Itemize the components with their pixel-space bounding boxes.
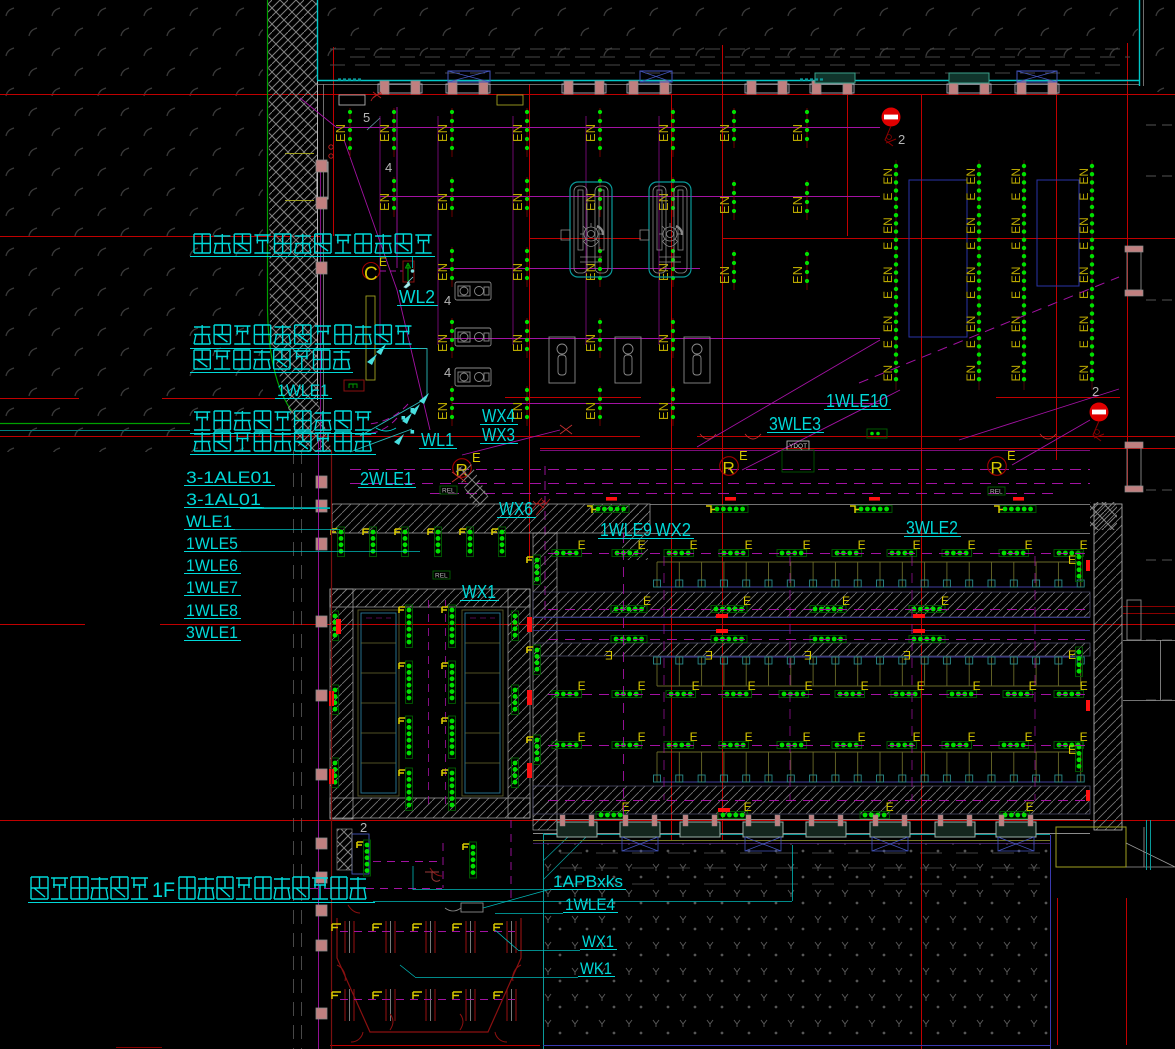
svg-text:WX6: WX6 [499,499,533,519]
svg-text:EN: EN [1009,316,1023,333]
svg-text:E: E [964,193,978,201]
svg-text:E: E [739,448,748,463]
svg-text:4: 4 [385,160,392,175]
svg-text:E: E [379,255,387,269]
svg-text:EN: EN [656,402,671,420]
svg-text:EN: EN [656,334,671,352]
svg-text:EN: EN [1077,316,1091,333]
svg-text:EN: EN [583,334,598,352]
svg-text:EN: EN [435,263,450,281]
svg-text:1WLE5: 1WLE5 [186,534,238,553]
svg-text:E: E [804,648,812,662]
svg-text:EN: EN [964,266,978,283]
svg-text:EN: EN [790,196,805,214]
svg-text:EN: EN [583,402,598,420]
svg-text:2: 2 [898,132,905,147]
svg-text:1F: 1F [152,879,175,902]
svg-text:C: C [364,264,378,285]
svg-text:E: E [1009,291,1023,299]
svg-text:E: E [1068,553,1076,567]
svg-text:EN: EN [964,316,978,333]
svg-text:E: E [705,648,713,662]
svg-text:E: E [881,291,895,299]
svg-text:E: E [964,291,978,299]
svg-text:EN: EN [881,266,895,283]
svg-text:EN: EN [435,402,450,420]
svg-text:E: E [1077,193,1091,201]
svg-text:EN: EN [964,217,978,234]
svg-text:E: E [1077,242,1091,250]
svg-text:4: 4 [444,293,451,308]
svg-text:E: E [881,193,895,201]
svg-text:REL: REL [990,489,1003,496]
svg-text:2: 2 [1092,384,1099,399]
svg-text:EN: EN [435,124,450,142]
svg-text:EN: EN [583,193,598,211]
svg-text:3-1AL01: 3-1AL01 [186,490,261,509]
svg-text:EN: EN [1009,217,1023,234]
svg-text:EN: EN [1009,168,1023,185]
svg-text:EN: EN [717,124,732,142]
svg-text:EN: EN [1077,168,1091,185]
svg-text:EN: EN [790,124,805,142]
svg-text:1APBxks: 1APBxks [553,872,623,891]
svg-text:YDQT: YDQT [789,443,807,450]
svg-text:E: E [1009,340,1023,348]
svg-text:EN: EN [510,334,525,352]
svg-text:EN: EN [435,334,450,352]
svg-text:WLE1: WLE1 [186,512,232,531]
svg-text:EN: EN [377,193,392,211]
svg-text:E: E [472,450,481,465]
svg-text:WX4: WX4 [482,406,515,426]
svg-text:WX1: WX1 [582,932,614,951]
svg-text:EN: EN [1077,217,1091,234]
svg-text:EN: EN [881,316,895,333]
svg-text:EN: EN [1077,365,1091,382]
svg-text:EN: EN [333,124,348,142]
svg-text:E: E [903,648,911,662]
svg-text:EN: EN [510,124,525,142]
svg-text:WX2: WX2 [655,520,691,540]
svg-text:1WLE9: 1WLE9 [600,520,652,540]
svg-text:WL1: WL1 [421,430,454,450]
svg-text:EN: EN [656,193,671,211]
svg-text:EN: EN [717,266,732,284]
svg-text:EN: EN [881,217,895,234]
svg-text:3WLE2: 3WLE2 [906,518,958,538]
svg-text:WL2: WL2 [399,287,435,307]
svg-text:EN: EN [717,196,732,214]
svg-text:EN: EN [377,124,392,142]
svg-text:EN: EN [510,193,525,211]
svg-text:2: 2 [360,820,367,835]
svg-text:EN: EN [1009,365,1023,382]
svg-text:1WLE4: 1WLE4 [565,895,615,914]
svg-text:1WLE8: 1WLE8 [186,601,238,620]
svg-text:E: E [1077,340,1091,348]
svg-text:E: E [1068,743,1076,757]
svg-text:2WLE1: 2WLE1 [360,469,413,489]
svg-text:EN: EN [1009,266,1023,283]
svg-text:E: E [1068,648,1076,662]
svg-text:E: E [1077,291,1091,299]
svg-text:R: R [723,459,735,478]
svg-text:EN: EN [964,168,978,185]
svg-text:E: E [964,242,978,250]
svg-text:WX1: WX1 [462,582,496,602]
svg-text:E: E [1009,242,1023,250]
svg-text:3WLE3: 3WLE3 [769,414,821,434]
svg-text:EN: EN [435,193,450,211]
svg-text:1WLE1: 1WLE1 [277,381,329,400]
svg-text:E: E [964,340,978,348]
svg-text:EN: EN [881,168,895,185]
svg-text:E: E [881,340,895,348]
svg-text:E: E [1007,448,1016,463]
svg-text:E: E [881,242,895,250]
svg-text:5: 5 [363,110,370,125]
svg-text:EN: EN [656,124,671,142]
svg-text:EN: EN [583,124,598,142]
svg-text:EN: EN [1077,266,1091,283]
svg-text:E: E [1009,193,1023,201]
svg-text:4: 4 [444,365,451,380]
svg-text:EN: EN [964,365,978,382]
svg-text:REL: REL [435,573,448,580]
svg-text:1WLE6: 1WLE6 [186,556,238,575]
svg-text:3-1ALE01: 3-1ALE01 [186,468,272,487]
svg-text:R: R [991,459,1003,478]
svg-text:EN: EN [790,266,805,284]
svg-text:3WLE1: 3WLE1 [186,623,238,642]
svg-text:1WLE7: 1WLE7 [186,578,238,597]
svg-text:REL: REL [442,488,455,495]
svg-text:EN: EN [510,263,525,281]
svg-text:WX3: WX3 [482,425,515,445]
svg-text:WK1: WK1 [580,959,612,978]
svg-text:E: E [605,648,613,662]
svg-text:1WLE10: 1WLE10 [826,391,888,411]
